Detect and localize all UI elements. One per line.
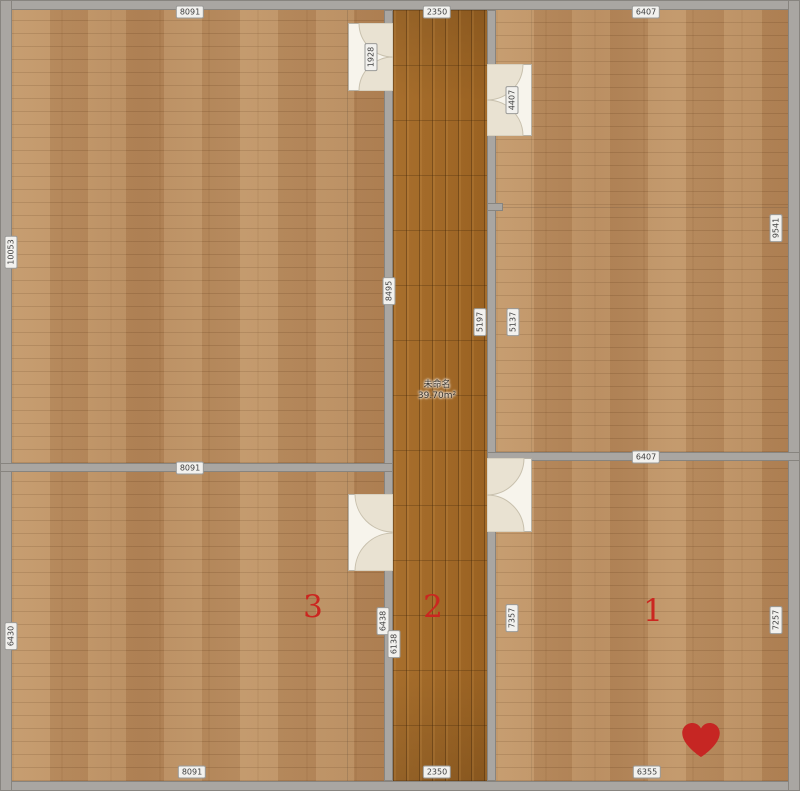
heart-icon[interactable]: [682, 723, 720, 761]
dimension-label: 8091: [176, 6, 204, 19]
dimension-label: 6138: [388, 630, 401, 658]
dimension-label: 10053: [5, 235, 18, 268]
room-number-2[interactable]: 2: [423, 589, 443, 625]
wall-left[interactable]: [0, 0, 12, 791]
dimension-label: 6430: [5, 622, 18, 650]
corridor-label: 未命名 39.70m²: [418, 380, 456, 402]
room-3-upper-floor[interactable]: [12, 10, 384, 463]
dimension-label: 7357: [506, 604, 519, 632]
room-3-floor[interactable]: [12, 472, 384, 781]
room-1-upper-floor[interactable]: [496, 10, 788, 452]
double-door-middle-right[interactable]: [487, 458, 532, 532]
floor-plan-canvas[interactable]: 未命名 39.70m² 8091235064078091640780912350…: [0, 0, 800, 791]
wall-right[interactable]: [788, 0, 800, 791]
dimension-label: 8091: [178, 766, 206, 779]
room-number-1[interactable]: 1: [643, 593, 663, 629]
wall-stub[interactable]: [487, 203, 503, 211]
dimension-label: 9541: [770, 214, 783, 242]
dimension-label: 5137: [507, 308, 520, 336]
dimension-label: 8091: [176, 462, 204, 475]
corridor-area: 39.70m²: [418, 391, 456, 402]
dimension-label: 5197: [474, 308, 487, 336]
wall-corridor-left[interactable]: [384, 10, 393, 781]
corridor-name: 未命名: [418, 380, 456, 391]
dimension-label: 6355: [633, 766, 661, 779]
wall-top[interactable]: [0, 0, 800, 10]
dimension-label: 4407: [506, 86, 519, 114]
dimension-label: 8495: [383, 277, 396, 305]
room-1-floor[interactable]: [496, 461, 788, 781]
room-number-3[interactable]: 3: [303, 589, 323, 625]
double-door-bottom-left[interactable]: [348, 494, 393, 571]
dimension-label: 1928: [365, 43, 378, 71]
dimension-label: 2350: [423, 766, 451, 779]
dimension-label: 2350: [423, 6, 451, 19]
dimension-label: 7257: [770, 606, 783, 634]
wall-bottom[interactable]: [0, 781, 800, 791]
dimension-label: 6407: [632, 6, 660, 19]
dimension-label: 6407: [632, 451, 660, 464]
